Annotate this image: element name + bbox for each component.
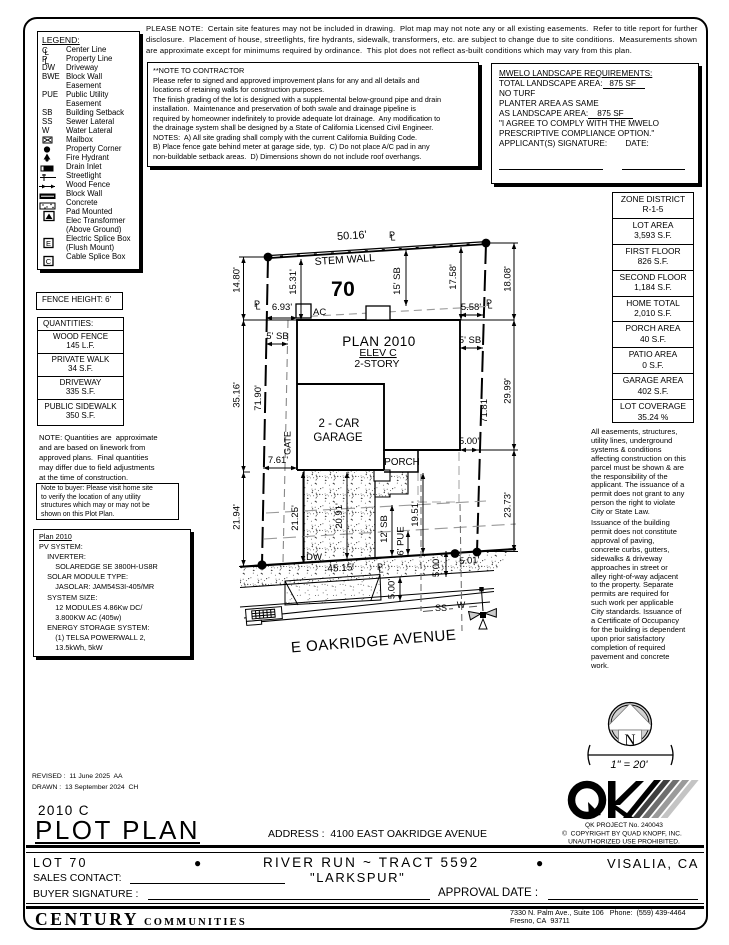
svg-text:© COPYRIGHT BY QUAD KNOPF, IN: © COPYRIGHT BY QUAD KNOPF, INC. xyxy=(562,830,682,838)
svg-text:17.58': 17.58' xyxy=(448,264,459,290)
svg-text:STEM WALL: STEM WALL xyxy=(314,252,375,268)
svg-text:35.16': 35.16' xyxy=(232,382,243,408)
svg-text:12' SB: 12' SB xyxy=(379,515,390,543)
svg-text:23.73': 23.73' xyxy=(503,492,514,518)
svg-text:L: L xyxy=(391,233,396,243)
svg-text:21.25': 21.25' xyxy=(290,505,301,531)
svg-text:18.08': 18.08' xyxy=(503,266,514,292)
svg-text:7.61': 7.61' xyxy=(268,455,288,466)
svg-text:PORCH: PORCH xyxy=(384,457,419,468)
svg-text:GATE: GATE xyxy=(283,431,293,455)
svg-text:29.99': 29.99' xyxy=(503,378,514,404)
svg-text:E OAKRIDGE AVENUE: E OAKRIDGE AVENUE xyxy=(290,627,457,657)
svg-text:5' SB: 5' SB xyxy=(266,331,288,342)
svg-text:45.15': 45.15' xyxy=(327,562,355,575)
svg-text:5.00': 5.00' xyxy=(459,436,479,447)
svg-text:W: W xyxy=(457,600,466,610)
svg-text:71.81': 71.81' xyxy=(479,397,490,423)
svg-text:15' SB: 15' SB xyxy=(392,267,403,295)
svg-text:L: L xyxy=(256,302,261,312)
svg-text:2 - CAR: 2 - CAR xyxy=(319,418,360,430)
svg-text:SS: SS xyxy=(435,603,447,613)
svg-text:L: L xyxy=(488,301,493,311)
svg-text:QK PROJECT No. 240043: QK PROJECT No. 240043 xyxy=(585,822,663,829)
svg-text:71.90': 71.90' xyxy=(253,385,264,411)
svg-text:19.51': 19.51' xyxy=(410,501,421,527)
svg-text:21.94': 21.94' xyxy=(232,504,243,530)
svg-text:6' PUE: 6' PUE xyxy=(396,526,407,555)
svg-text:2-STORY: 2-STORY xyxy=(354,358,399,370)
svg-text:GARAGE: GARAGE xyxy=(313,432,363,444)
svg-text:N: N xyxy=(624,732,635,749)
svg-text:5.00': 5.00' xyxy=(387,579,398,599)
svg-text:5.01': 5.01' xyxy=(459,555,480,567)
svg-text:1" = 20': 1" = 20' xyxy=(611,759,649,771)
svg-text:AC: AC xyxy=(313,307,326,318)
svg-text:14.80': 14.80' xyxy=(232,267,243,293)
svg-text:5' SB: 5' SB xyxy=(459,335,481,346)
svg-text:50.16': 50.16' xyxy=(337,229,367,243)
svg-text:15.31': 15.31' xyxy=(288,269,299,295)
svg-text:L: L xyxy=(379,565,384,575)
svg-text:5.58': 5.58' xyxy=(461,302,481,313)
svg-text:6.93': 6.93' xyxy=(272,302,292,313)
svg-text:5.00': 5.00' xyxy=(431,557,442,577)
svg-text:20.91': 20.91' xyxy=(334,503,345,529)
svg-text:70: 70 xyxy=(331,278,355,301)
svg-text:DW: DW xyxy=(306,552,322,563)
